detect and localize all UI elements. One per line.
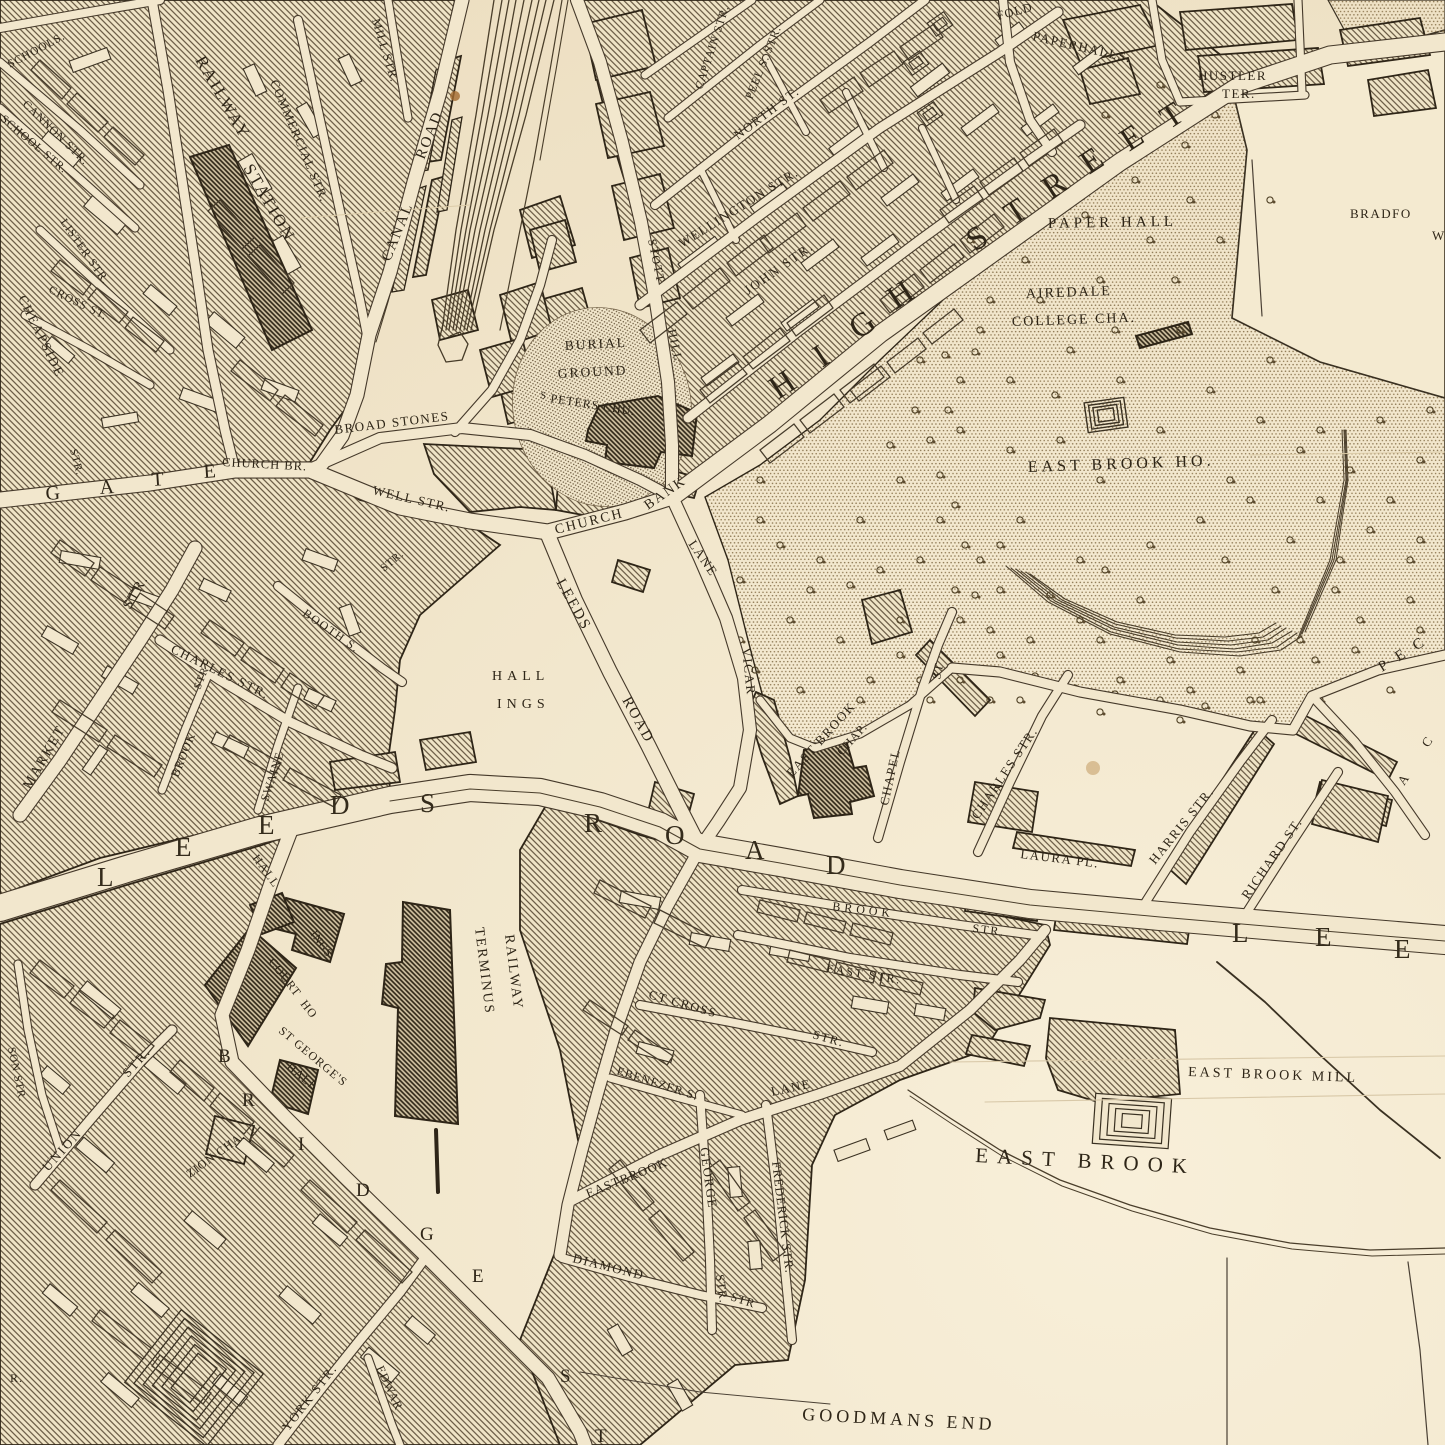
svg-text:S: S	[420, 788, 435, 818]
svg-text:T: T	[595, 1426, 607, 1445]
svg-text:R.: R.	[10, 1371, 23, 1385]
svg-text:E: E	[175, 832, 192, 862]
svg-text:INGS: INGS	[497, 697, 550, 712]
svg-text:S: S	[560, 1366, 571, 1387]
svg-text:L: L	[1232, 918, 1249, 948]
svg-text:D: D	[330, 790, 350, 820]
svg-text:E: E	[1394, 934, 1411, 964]
svg-text:HALL: HALL	[492, 669, 549, 684]
svg-text:O: O	[665, 820, 685, 850]
svg-text:D: D	[826, 850, 846, 880]
svg-text:E: E	[1315, 922, 1332, 952]
svg-text:D: D	[356, 1180, 370, 1201]
svg-text:B: B	[218, 1046, 231, 1067]
svg-text:AIREDALE: AIREDALE	[1026, 284, 1112, 302]
svg-text:BRADFO: BRADFO	[1350, 206, 1412, 221]
svg-text:R: R	[584, 808, 602, 838]
svg-text:T: T	[151, 468, 165, 491]
svg-text:A: A	[745, 835, 765, 865]
svg-text:PAPER HALL: PAPER HALL	[1048, 214, 1177, 232]
svg-text:W: W	[1432, 228, 1445, 243]
svg-text:G: G	[45, 482, 61, 505]
svg-text:E: E	[258, 810, 275, 840]
svg-text:A: A	[99, 476, 115, 499]
svg-text:R: R	[242, 1090, 255, 1111]
svg-text:E: E	[203, 460, 217, 483]
svg-text:TER.: TER.	[1222, 86, 1256, 101]
svg-text:HUSTLER: HUSTLER	[1198, 68, 1267, 83]
svg-text:L: L	[97, 862, 114, 892]
svg-text:E: E	[472, 1266, 484, 1287]
svg-text:G: G	[420, 1224, 434, 1245]
svg-text:I: I	[298, 1134, 304, 1155]
